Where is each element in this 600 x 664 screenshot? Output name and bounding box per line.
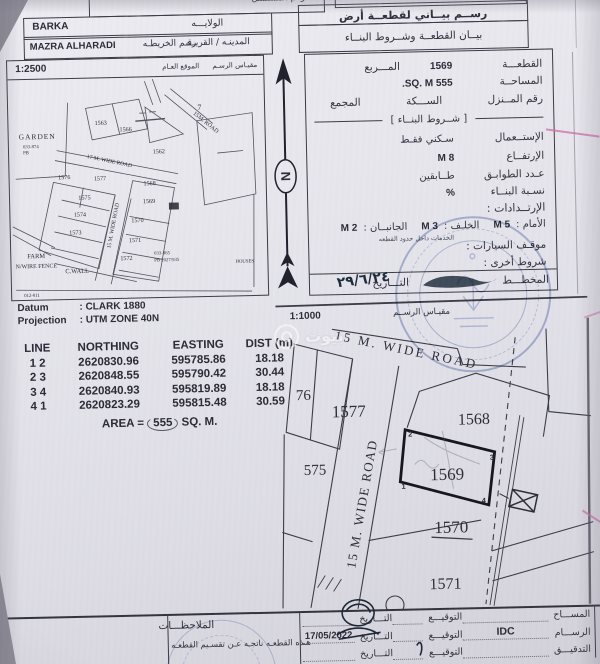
ov-label-road15: 15M. ROAD [191, 111, 219, 136]
serial-label: الـرقم المسلسل [251, 0, 314, 4]
ratio-label: نسـبة البنــاء [477, 185, 545, 198]
ov-label-houses: HOUSES [236, 259, 255, 264]
corner-2: 2 [408, 430, 412, 439]
ov-label-road17: 17 M. WIDE ROAD [86, 154, 132, 169]
ov-plot-1569: 1569 [143, 199, 155, 205]
overview-map-box: 1:2500 الموقع العـام مقيـاس الرسـم [6, 55, 269, 302]
height-label: الإرتفــاع [476, 150, 544, 163]
ov-plot-1563: 1563 [95, 121, 107, 127]
datum-label: Datum [17, 302, 79, 314]
overview-scale-label: مقيـاس الرسـم [212, 61, 257, 70]
ov-plot-1577: 1577 [94, 176, 106, 182]
corner-3: 3 [490, 453, 494, 462]
street-label: الســـكة [406, 95, 442, 108]
footer-stamp-inner [181, 634, 263, 664]
scanned-land-survey-document: الـرقم المسلسل BARKA الولايـــه MAZRA AL… [0, 0, 600, 664]
use-value: سـكني فقـط [400, 133, 454, 145]
paper-sheet: الـرقم المسلسل BARKA الولايـــه MAZRA AL… [0, 0, 600, 664]
ov-label-fence: N/WIRE FENCE [16, 264, 58, 271]
datum-line: Datum: CLARK 1880 [17, 300, 145, 314]
complex-label: المجمع [330, 97, 361, 110]
ov-label-ref2: PB 2027/935 [154, 258, 180, 264]
cell-line-1: 1 2 [14, 356, 60, 372]
ov-plot-1570: 1570 [131, 218, 143, 224]
ov-label-cwall: C.WALL [65, 268, 89, 276]
site-plot-1570: 1570 [434, 517, 468, 537]
page-fold-line [572, 52, 578, 294]
watermark-text: بيوت [305, 326, 344, 346]
projection-label: Projection [18, 315, 80, 327]
surveyor-label: المســـاح [548, 609, 590, 621]
cell-line-2: 2 3 [15, 370, 61, 386]
col-header-line: LINE [14, 341, 60, 357]
subject-plot-marker [169, 202, 179, 209]
ratio-value: % [446, 187, 455, 198]
ov-label-garden-ref2: PB [23, 151, 29, 156]
site-plot-1577: 1577 [332, 402, 367, 422]
audit-label: التدقيـــق [549, 644, 591, 656]
village-label: المدينـه / القريــه [186, 37, 250, 48]
height-value: 8 M [437, 152, 454, 163]
north-arrow: N [264, 56, 307, 295]
ov-label-garden-ref: 033-874 [23, 145, 40, 150]
ov-plot-1568: 1568 [143, 181, 155, 187]
area-suffix: SQ. M. [181, 416, 217, 429]
subtitle-box: بيــان القطعــة وشــروط البنــاء [298, 20, 529, 53]
building-conditions-title: [ شــروط البنــاء ] [390, 113, 467, 126]
plot-value: 1569 [430, 60, 452, 71]
site-plot-1568: 1568 [458, 411, 490, 429]
datum-value: : CLARK 1880 [79, 300, 145, 312]
document-subtitle: بيــان القطعــة وشــروط البنــاء [345, 29, 483, 44]
ov-plot-1571: 1571 [129, 238, 141, 244]
page-fold-line-top [575, 0, 577, 48]
planner-date-handwritten: ٢٩/٦/٢٤ [303, 269, 390, 296]
ov-label-ref3: 012-811 [24, 294, 40, 299]
footer-handwritten-marks [306, 586, 478, 664]
draftsman-label: الرســـام [549, 626, 591, 638]
area-total-value: 555 [147, 416, 179, 432]
footer-divider-3 [594, 605, 596, 658]
cell-line-4: 4 1 [15, 399, 61, 415]
ov-plot-1572: 1572 [120, 256, 132, 262]
site-plot-1569: 1569 [430, 464, 464, 484]
sides-value: 2 M [341, 223, 358, 234]
floors-label: عـدد الطوابـق [476, 168, 544, 181]
cell-northing-4: 2620823.29 [61, 397, 157, 414]
ov-plot-1573: 1573 [69, 230, 81, 236]
official-stamp [394, 215, 553, 374]
camera-icon [274, 324, 300, 350]
use-label: الإستــعمال [476, 131, 544, 144]
wilaya-label: الولايـــه [191, 18, 223, 30]
site-road-side-label: 15 M. WIDE ROAD [343, 438, 380, 569]
setbacks-label: الإرتــدادات : [487, 201, 546, 215]
area-note: AREA = 555 SQ. M. [102, 416, 218, 431]
overview-general-label: الموقع العـام [162, 62, 199, 71]
site-plot-575: 575 [304, 462, 327, 478]
watermark: بيوت [274, 323, 344, 350]
site-scale-value: 1:1000 [290, 311, 322, 323]
ov-plot-1576: 1576 [58, 175, 70, 181]
north-arrow-fletch [277, 252, 298, 288]
cell-line-3: 3 4 [15, 385, 61, 401]
stamp-emblem [396, 217, 551, 372]
ov-plot-1562: 1562 [153, 149, 165, 155]
floors-value: طــابقين [419, 170, 455, 182]
coordinates-table: LINE NORTHING EASTING DIST (m) 1 2262083… [14, 336, 300, 415]
projection-line: Projection: UTM ZONE 40N [18, 313, 160, 327]
area-prefix: AREA = [102, 417, 144, 430]
village-value: MAZRA ALHARADI [30, 40, 116, 53]
site-plot-76: 76 [296, 388, 312, 404]
cell-easting-4: 595815.48 [157, 395, 241, 411]
block-label: المـــربع [364, 61, 400, 74]
projection-value: : UTM ZONE 40N [80, 313, 160, 326]
overview-scale-value: 1:2500 [15, 63, 46, 75]
north-letter: N [278, 171, 293, 181]
area-label: المساحــة [474, 75, 542, 88]
ov-plot-1574: 1574 [74, 212, 86, 218]
ov-label-farm: FARM [27, 253, 45, 260]
ov-label-garden: GARDEN [19, 132, 56, 142]
plot-label: القطعـــة [474, 58, 542, 71]
ov-label-ref1: 033-865 [154, 251, 171, 256]
ov-plot-1575: 1575 [78, 195, 90, 201]
wilaya-value: BARKA [32, 21, 68, 33]
corner-1: 1 [401, 482, 405, 491]
house-no-label: رقم المــنزل [487, 93, 543, 106]
area-value: 555 SQ. M. [402, 77, 453, 89]
overview-map: 1563 1566 1562 1576 1577 1575 1574 1573 … [7, 75, 266, 298]
ov-plot-1566: 1566 [119, 127, 131, 133]
ov-label-7: 7 [197, 103, 201, 112]
